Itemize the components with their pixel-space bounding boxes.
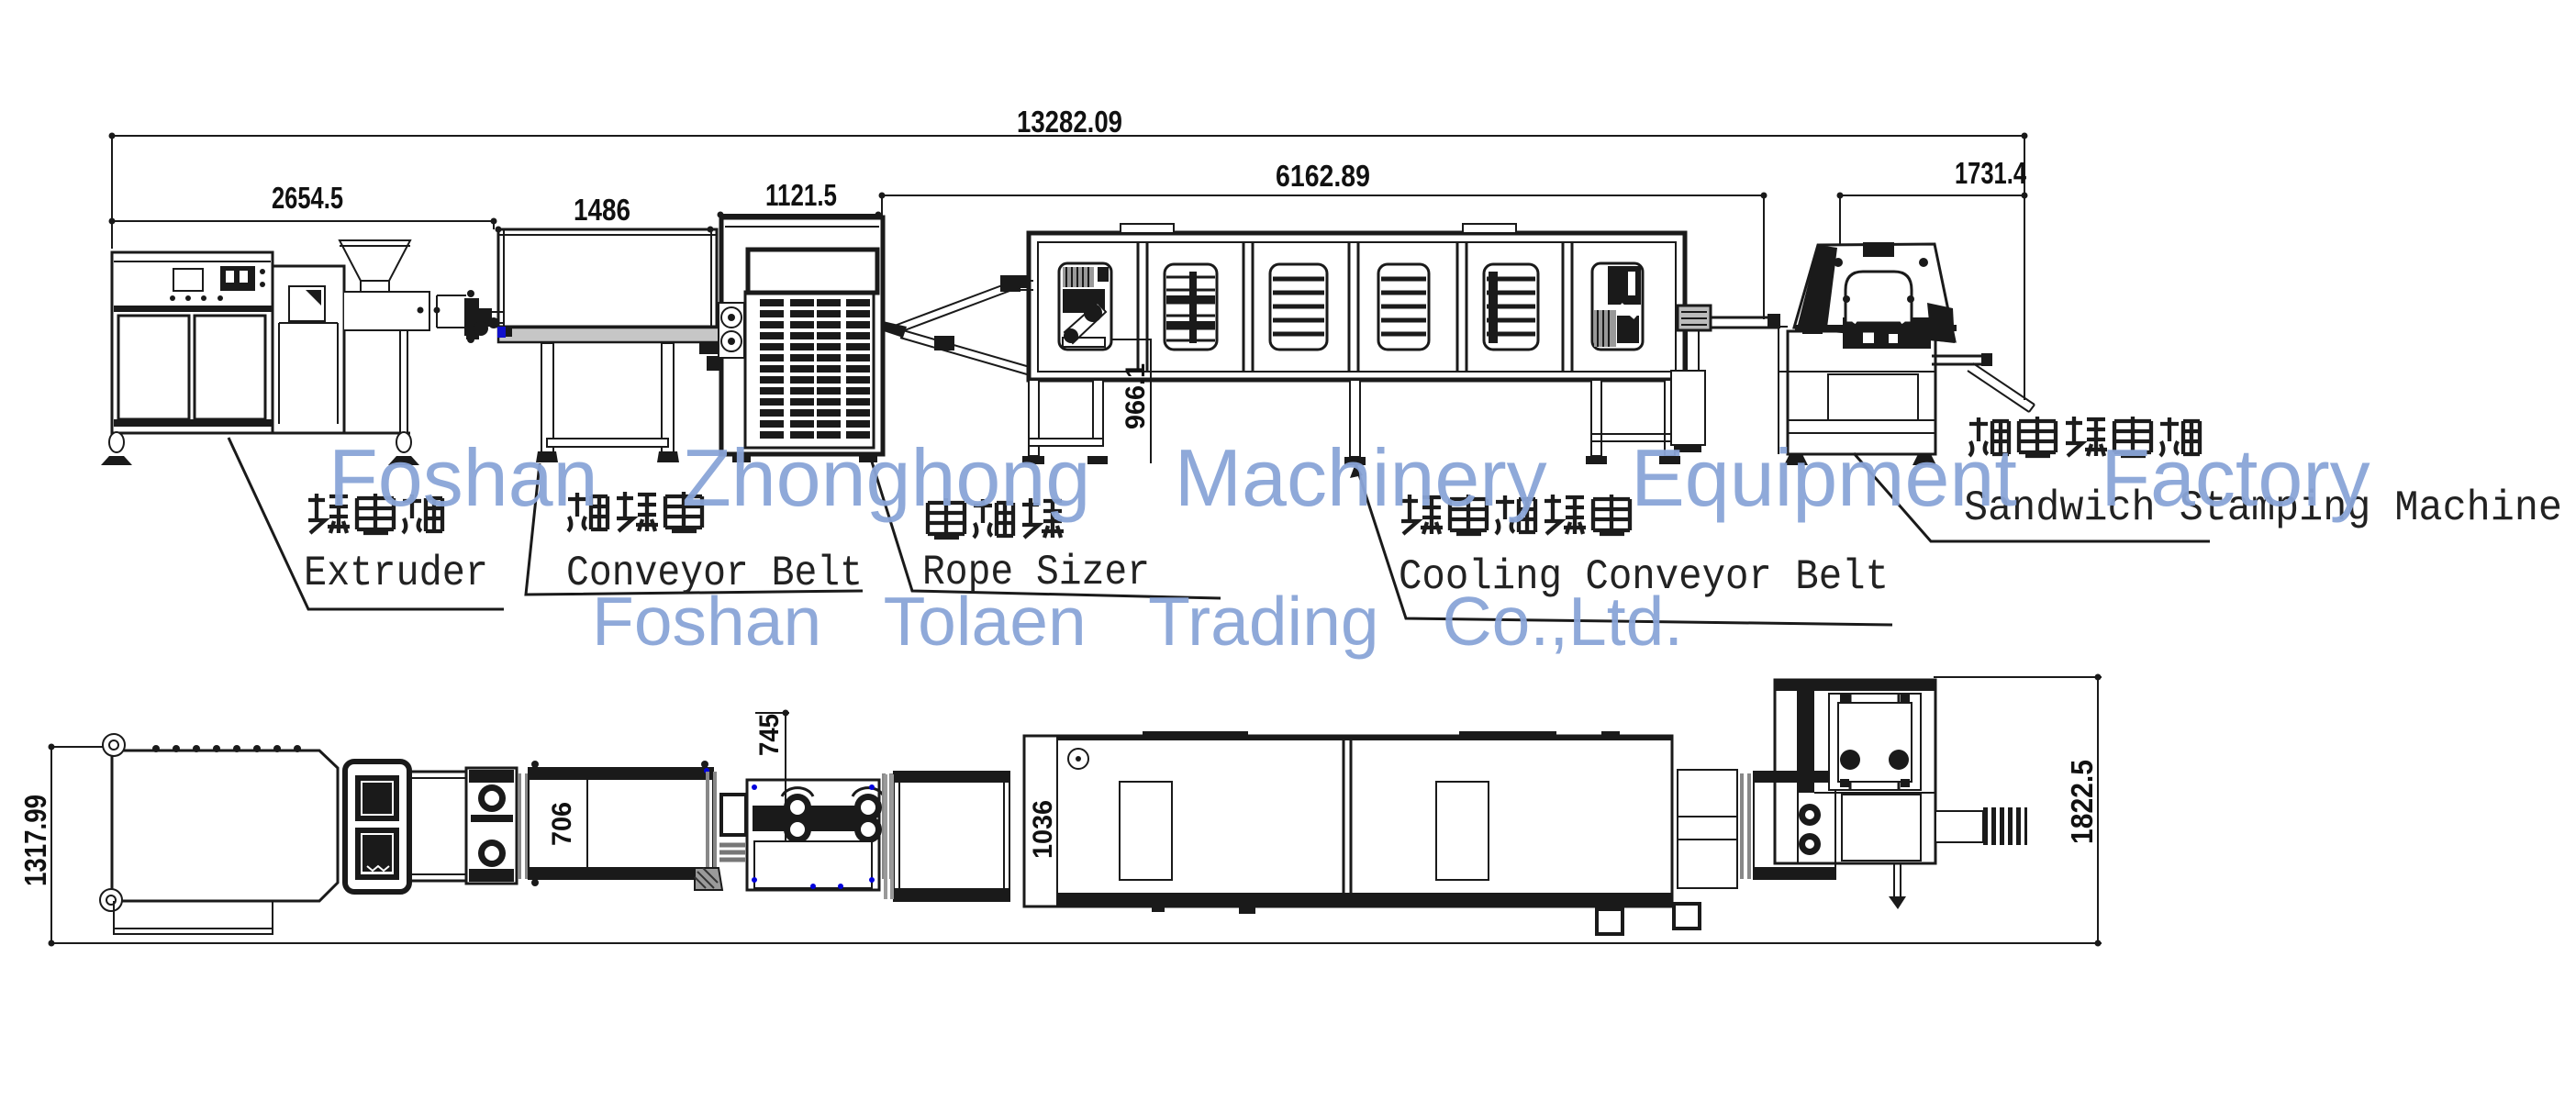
svg-text:966.1: 966.1 (1121, 363, 1151, 429)
svg-text:6162.89: 6162.89 (1276, 159, 1370, 193)
svg-text:Foshan Zhonghong Machinery Equ: Foshan Zhonghong Machinery Equipment Fac… (329, 432, 2370, 523)
svg-text:Foshan Tolaen Trading Co.,Ltd.: Foshan Tolaen Trading Co.,Ltd. (592, 583, 1683, 660)
svg-text:1731.4: 1731.4 (1955, 156, 2026, 190)
svg-text:1121.5: 1121.5 (765, 178, 837, 212)
svg-text:745: 745 (754, 714, 785, 756)
svg-text:1036: 1036 (1028, 800, 1058, 859)
svg-text:Extruder: Extruder (304, 550, 488, 597)
svg-text:1486: 1486 (574, 193, 630, 227)
svg-text:2654.5: 2654.5 (272, 181, 343, 215)
svg-text:1822.5: 1822.5 (2065, 760, 2099, 844)
svg-text:706: 706 (547, 802, 577, 846)
svg-text:1317.99: 1317.99 (18, 795, 52, 886)
svg-text:13282.09: 13282.09 (1017, 105, 1122, 139)
